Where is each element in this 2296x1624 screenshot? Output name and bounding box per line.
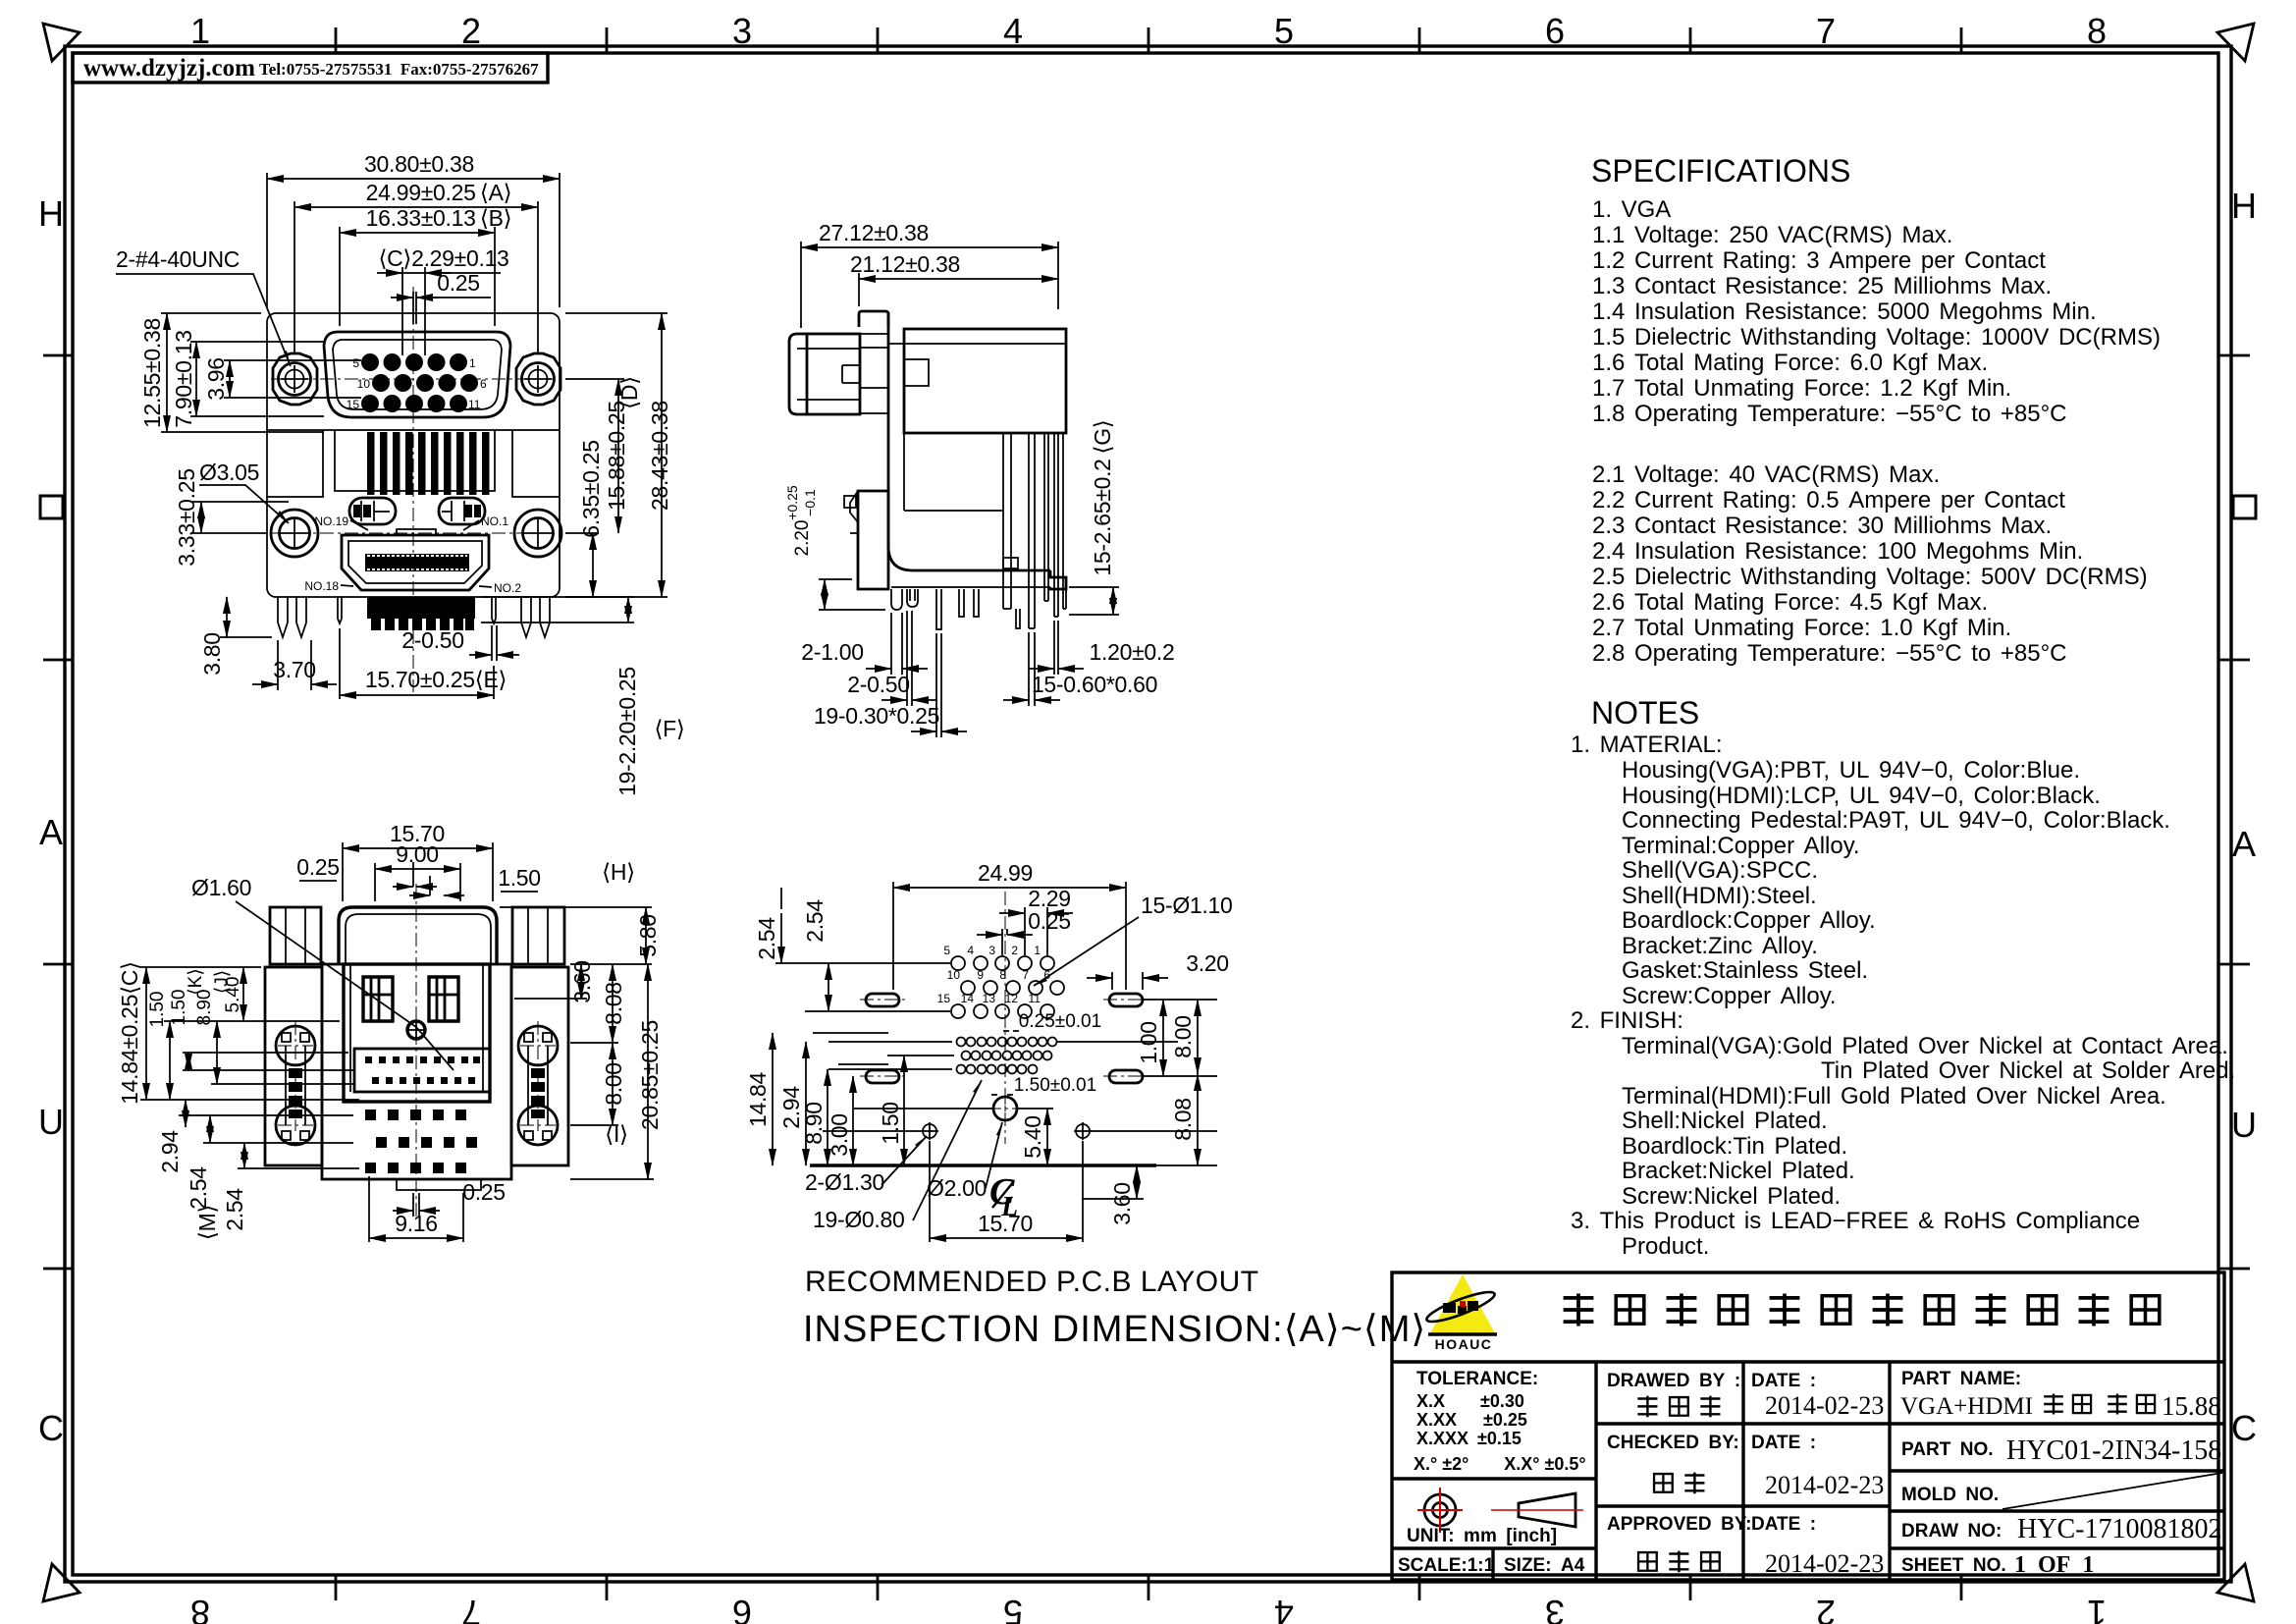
svg-text:8.08: 8.08 — [1170, 1098, 1196, 1141]
svg-text:2.4 Insulation Resistance:: 2.4 Insulation Resistance: 100 Megohms M… — [1592, 538, 2083, 565]
svg-text:⟨I⟩: ⟨I⟩ — [605, 1121, 627, 1147]
svg-text:2: 2 — [1011, 944, 1018, 957]
svg-text:C: C — [38, 1408, 64, 1448]
svg-text:12.55±0.38: 12.55±0.38 — [139, 318, 165, 428]
svg-text:16.33±0.13 ⟨B⟩: 16.33±0.13 ⟨B⟩ — [366, 205, 512, 231]
svg-text:1: 1 — [469, 356, 476, 370]
svg-text:Boardlock:Copper Alloy.: Boardlock:Copper Alloy. — [1622, 907, 1876, 934]
svg-text:DRAW NO:: DRAW NO: — [1901, 1521, 2002, 1542]
svg-text:15.70±0.25⟨E⟩: 15.70±0.25⟨E⟩ — [365, 667, 507, 692]
svg-text:APPROVED BY:: APPROVED BY: — [1607, 1514, 1751, 1535]
svg-text:2-#4-40UNC: 2-#4-40UNC — [116, 246, 240, 272]
svg-text:Terminal:Copper Alloy.: Terminal:Copper Alloy. — [1622, 833, 1860, 859]
svg-text:Product.: Product. — [1622, 1233, 1709, 1260]
svg-text:HYC01-2IN34-158: HYC01-2IN34-158 — [2006, 1435, 2221, 1466]
svg-text:5.80: 5.80 — [635, 914, 661, 957]
svg-text:19-2.20±0.25: 19-2.20±0.25 — [614, 667, 640, 796]
svg-text:X.° ±2° X.X° ±0.5°: X.° ±2° X.X° ±0.5° — [1414, 1454, 1586, 1474]
svg-text:⟨J⟩: ⟨J⟩ — [212, 970, 233, 994]
svg-text:A: A — [39, 812, 63, 852]
svg-text:3.80: 3.80 — [199, 632, 225, 676]
svg-text:2.1 Voltage: 40 VAC(RMS) M: 2.1 Voltage: 40 VAC(RMS) Max. — [1592, 461, 1940, 488]
svg-text:11: 11 — [1029, 992, 1041, 1005]
svg-text:Tel:0755-27575531 Fax:0755-275: Tel:0755-27575531 Fax:0755-27576267 — [259, 60, 539, 79]
svg-text:X.X ±0.30: X.X ±0.30 — [1416, 1391, 1524, 1411]
svg-text:PART NO.: PART NO. — [1901, 1439, 1994, 1460]
svg-text:⟨C⟩2.29±0.13: ⟨C⟩2.29±0.13 — [378, 245, 508, 271]
svg-text:RECOMMENDED P.C.B LAYOUT: RECOMMENDED P.C.B LAYOUT — [805, 1266, 1259, 1298]
svg-text:DATE :: DATE : — [1751, 1371, 1816, 1391]
svg-text:2-Ø1.30: 2-Ø1.30 — [805, 1169, 884, 1195]
svg-text:2.54: 2.54 — [802, 899, 828, 943]
svg-text:2.54: 2.54 — [186, 1166, 211, 1210]
svg-text:2014-02-23: 2014-02-23 — [1765, 1391, 1884, 1420]
svg-text:14: 14 — [961, 992, 975, 1005]
svg-text:15.88: 15.88 — [2162, 1391, 2221, 1421]
svg-text:8: 8 — [190, 1593, 210, 1624]
svg-text:13: 13 — [983, 992, 996, 1005]
svg-text:1.4 Insulation Resistance:: 1.4 Insulation Resistance: 5000 Megohms … — [1592, 298, 2097, 325]
svg-text:U: U — [2231, 1105, 2257, 1145]
svg-text:X.XX ±0.25: X.XX ±0.25 — [1416, 1410, 1527, 1430]
svg-text:Terminal(VGA):Gold Plated Ov: Terminal(VGA):Gold Plated Over Nickel at… — [1622, 1033, 2228, 1059]
svg-text:5: 5 — [943, 944, 950, 957]
svg-text:DATE :: DATE : — [1751, 1514, 1816, 1535]
svg-text:2.7 Total Unmating Force:: 2.7 Total Unmating Force: 1.0 Kgf Min. — [1592, 615, 2011, 641]
svg-text:DRAWED BY :: DRAWED BY : — [1607, 1371, 1740, 1391]
svg-text:Boardlock:Tin Plated.: Boardlock:Tin Plated. — [1622, 1133, 1847, 1160]
svg-text:H: H — [2231, 186, 2257, 226]
svg-text:9: 9 — [977, 968, 984, 982]
svg-text:15-0.60*0.60: 15-0.60*0.60 — [1032, 672, 1157, 697]
svg-text:2-0.50: 2-0.50 — [847, 672, 909, 697]
svg-text:NOTES: NOTES — [1591, 695, 1699, 731]
svg-text:3: 3 — [1545, 1593, 1565, 1624]
svg-text:HOAUC: HOAUC — [1435, 1336, 1493, 1352]
svg-text:SIZE: A4: SIZE: A4 — [1504, 1555, 1585, 1576]
svg-text:Gasket:Stainless Steel.: Gasket:Stainless Steel. — [1622, 957, 1868, 984]
svg-text:19-0.30*0.25: 19-0.30*0.25 — [814, 703, 939, 729]
svg-text:28.43±0.38: 28.43±0.38 — [647, 401, 672, 511]
svg-text:14.84±0.25⟨C⟩: 14.84±0.25⟨C⟩ — [117, 961, 142, 1105]
svg-text:⟨M⟩: ⟨M⟩ — [194, 1205, 220, 1240]
svg-text:27.12±0.38: 27.12±0.38 — [819, 220, 929, 245]
svg-text:8: 8 — [2087, 11, 2107, 51]
svg-text:+0.25: +0.25 — [784, 485, 800, 520]
svg-text:7: 7 — [461, 1593, 481, 1624]
svg-text:Ø3.05: Ø3.05 — [199, 460, 259, 485]
svg-text:2: 2 — [461, 11, 481, 51]
svg-text:⟨G⟩: ⟨G⟩ — [1090, 420, 1115, 455]
svg-text:NO.19: NO.19 — [314, 514, 348, 528]
svg-text:A: A — [2232, 824, 2256, 864]
svg-text:H: H — [38, 193, 64, 234]
svg-text:−0.1: −0.1 — [802, 489, 818, 516]
svg-text:Shell(VGA):SPCC.: Shell(VGA):SPCC. — [1622, 857, 1818, 884]
svg-text:3.70: 3.70 — [273, 657, 316, 682]
svg-text:Screw:Copper Alloy.: Screw:Copper Alloy. — [1622, 983, 1837, 1009]
svg-text:TOLERANCE:: TOLERANCE: — [1416, 1369, 1538, 1389]
svg-text:15.70: 15.70 — [978, 1211, 1033, 1236]
svg-text:1.8 Operating Temperature:: 1.8 Operating Temperature: −55°C to +85°… — [1592, 401, 2067, 427]
svg-text:3: 3 — [732, 11, 752, 51]
svg-text:Shell:Nickel Plated.: Shell:Nickel Plated. — [1622, 1108, 1828, 1134]
svg-text:6: 6 — [1545, 11, 1565, 51]
svg-text:2.2 Current Rating: 0.5 Am: 2.2 Current Rating: 0.5 Ampere per Conta… — [1592, 487, 2065, 514]
svg-text:1 OF 1: 1 OF 1 — [2014, 1552, 2094, 1578]
svg-text:0.25±0.01: 0.25±0.01 — [1019, 1011, 1101, 1032]
svg-text:7: 7 — [1022, 968, 1029, 982]
svg-text:NO.18: NO.18 — [304, 579, 339, 593]
svg-text:1.6 Total Mating Force: 6.: 1.6 Total Mating Force: 6.0 Kgf Max. — [1592, 350, 1988, 376]
svg-text:1.20±0.2: 1.20±0.2 — [1090, 639, 1175, 665]
svg-text:8.00: 8.00 — [601, 1062, 626, 1106]
svg-text:3.00: 3.00 — [827, 1113, 852, 1157]
svg-text:8.08: 8.08 — [601, 982, 626, 1025]
svg-text:6.35±0.25: 6.35±0.25 — [578, 440, 604, 537]
svg-text:15-2.65±0.2: 15-2.65±0.2 — [1090, 459, 1115, 575]
svg-text:Housing(VGA):PBT, UL 94V−0,: Housing(VGA):PBT, UL 94V−0, Color:Blue. — [1622, 757, 2080, 784]
svg-text:MOLD NO.: MOLD NO. — [1901, 1485, 1999, 1505]
svg-text:1: 1 — [1034, 944, 1041, 957]
svg-text:Tin Plated Over Nickel at: Tin Plated Over Nickel at Solder Ared. — [1821, 1057, 2235, 1084]
svg-text:5: 5 — [352, 356, 359, 370]
svg-text:11: 11 — [468, 398, 481, 411]
svg-text:NO.1: NO.1 — [481, 514, 508, 528]
svg-text:2: 2 — [1816, 1593, 1836, 1624]
svg-text:3: 3 — [988, 944, 995, 957]
svg-text:2.3 Contact Resistance: 30: 2.3 Contact Resistance: 30 Milliohms Max… — [1592, 513, 2052, 539]
svg-text:30.80±0.38: 30.80±0.38 — [364, 151, 474, 177]
svg-text:1.1 Voltage: 250 VAC(RMS): 1.1 Voltage: 250 VAC(RMS) Max. — [1592, 222, 1952, 248]
svg-text:0.25: 0.25 — [462, 1179, 506, 1205]
svg-text:Shell(HDMI):Steel.: Shell(HDMI):Steel. — [1622, 883, 1817, 909]
svg-text:2-0.50: 2-0.50 — [401, 627, 463, 653]
svg-text:2.8 Operating Temperature:: 2.8 Operating Temperature: −55°C to +85°… — [1592, 640, 2067, 667]
svg-text:1.7 Total Unmating Force:: 1.7 Total Unmating Force: 1.2 Kgf Min. — [1592, 375, 2011, 402]
svg-text:SHEET NO.: SHEET NO. — [1901, 1555, 2006, 1576]
svg-text:7: 7 — [1816, 11, 1836, 51]
svg-text:20.85±0.25: 20.85±0.25 — [637, 1020, 663, 1130]
svg-text:X.XXX ±0.15: X.XXX ±0.15 — [1416, 1429, 1522, 1448]
svg-text:15: 15 — [347, 398, 360, 411]
svg-text:Bracket:Nickel Plated.: Bracket:Nickel Plated. — [1622, 1158, 1855, 1184]
svg-text:2-1.00: 2-1.00 — [801, 639, 863, 665]
svg-text:15: 15 — [937, 992, 951, 1005]
svg-text:Housing(HDMI):LCP, UL 94V−0,: Housing(HDMI):LCP, UL 94V−0, Color:Black… — [1622, 783, 2101, 809]
svg-text:2.54: 2.54 — [222, 1188, 247, 1231]
svg-text:3.60: 3.60 — [1109, 1182, 1135, 1225]
svg-text:Screw:Nickel Plated.: Screw:Nickel Plated. — [1622, 1183, 1841, 1210]
svg-text:1.50: 1.50 — [147, 992, 168, 1028]
svg-text:VGA+HDMI: VGA+HDMI — [1900, 1393, 2033, 1420]
svg-text:5.40: 5.40 — [1020, 1115, 1045, 1159]
svg-text:1.5 Dielectric Withstanding: 1.5 Dielectric Withstanding Voltage: 100… — [1592, 324, 2161, 351]
svg-text:2. FINISH:: 2. FINISH: — [1571, 1007, 1683, 1034]
svg-text:0.25: 0.25 — [1028, 908, 1071, 934]
svg-text:19-Ø0.80: 19-Ø0.80 — [813, 1207, 905, 1232]
svg-text:3.96: 3.96 — [203, 357, 229, 401]
svg-text:3. This Product is LEAD−FR: 3. This Product is LEAD−FREE & RoHS Comp… — [1571, 1208, 2140, 1234]
svg-text:12: 12 — [1005, 992, 1019, 1005]
svg-text:Connecting Pedestal:PA9T, UL: Connecting Pedestal:PA9T, UL 94V−0, Colo… — [1622, 807, 2170, 834]
svg-text:2.20: 2.20 — [792, 520, 813, 557]
svg-text:U: U — [38, 1102, 64, 1142]
svg-text:2.94: 2.94 — [157, 1130, 183, 1173]
svg-text:1: 1 — [190, 11, 210, 51]
svg-text:⟨K⟩: ⟨K⟩ — [186, 968, 206, 996]
svg-text:1.3 Contact Resistance: 25: 1.3 Contact Resistance: 25 Milliohms Max… — [1592, 273, 2052, 299]
svg-text:NO.2: NO.2 — [494, 581, 521, 595]
svg-text:HYC-1710081802: HYC-1710081802 — [2017, 1514, 2221, 1544]
svg-text:2.5 Dielectric Withstanding: 2.5 Dielectric Withstanding Voltage: 500… — [1592, 564, 2148, 590]
svg-text:SCALE:1:1: SCALE:1:1 — [1398, 1555, 1495, 1576]
svg-text:SPECIFICATIONS: SPECIFICATIONS — [1591, 153, 1850, 189]
svg-text:6: 6 — [732, 1593, 752, 1624]
svg-text:15-Ø1.10: 15-Ø1.10 — [1141, 893, 1233, 918]
svg-text:1.50: 1.50 — [498, 865, 541, 891]
svg-text:1: 1 — [2087, 1593, 2107, 1624]
svg-text:15.88±0.25: 15.88±0.25 — [604, 401, 629, 511]
svg-text:21.12±0.38: 21.12±0.38 — [850, 251, 960, 277]
svg-text:10: 10 — [947, 968, 961, 982]
svg-text:4: 4 — [1003, 11, 1023, 51]
svg-text:1.50: 1.50 — [878, 1102, 903, 1145]
svg-text:5: 5 — [1003, 1593, 1023, 1624]
svg-text:Bracket:Zinc Alloy.: Bracket:Zinc Alloy. — [1622, 933, 1818, 959]
svg-text:1. VGA: 1. VGA — [1592, 196, 1671, 223]
svg-text:1.2 Current Rating: 3 Ampe: 1.2 Current Rating: 3 Ampere per Contact — [1592, 247, 2046, 274]
svg-text:⟨F⟩: ⟨F⟩ — [654, 716, 684, 741]
svg-text:24.99: 24.99 — [978, 860, 1033, 886]
svg-text:Terminal(HDMI):Full Gold Pla: Terminal(HDMI):Full Gold Plated Over Nic… — [1622, 1083, 2166, 1110]
svg-text:1.50±0.01: 1.50±0.01 — [1014, 1075, 1096, 1096]
svg-text:8.90: 8.90 — [801, 1102, 827, 1145]
svg-text:3.60: 3.60 — [569, 960, 595, 1003]
svg-text:9.00: 9.00 — [396, 841, 439, 867]
svg-text:3.20: 3.20 — [1186, 950, 1229, 976]
svg-text:2.6 Total Mating Force: 4.: 2.6 Total Mating Force: 4.5 Kgf Max. — [1592, 589, 1988, 616]
svg-text:1. MATERIAL:: 1. MATERIAL: — [1571, 731, 1723, 758]
svg-text:0.25: 0.25 — [296, 854, 340, 880]
svg-text:2.54: 2.54 — [754, 917, 779, 960]
svg-text:1.00: 1.00 — [1136, 1021, 1161, 1064]
svg-text:3.33±0.25: 3.33±0.25 — [174, 468, 199, 566]
svg-text:4: 4 — [1274, 1593, 1294, 1624]
svg-text:24.99±0.25 ⟨A⟩: 24.99±0.25 ⟨A⟩ — [366, 180, 512, 205]
svg-text:Ø1.60: Ø1.60 — [191, 875, 251, 900]
svg-text:2014-02-23: 2014-02-23 — [1765, 1471, 1884, 1499]
svg-text:2014-02-23: 2014-02-23 — [1765, 1549, 1884, 1578]
svg-text:8.00: 8.00 — [1170, 1015, 1196, 1058]
svg-text:PART NAME:: PART NAME: — [1901, 1369, 2021, 1389]
svg-text:⟨D⟩: ⟨D⟩ — [616, 376, 642, 409]
svg-text:14.84: 14.84 — [745, 1071, 771, 1127]
svg-text:INSPECTION DIMENSION:⟨A⟩~⟨M⟩: INSPECTION DIMENSION:⟨A⟩~⟨M⟩ — [803, 1309, 1426, 1350]
svg-text:C: C — [2231, 1408, 2257, 1448]
svg-text:www.dzyjzj.com: www.dzyjzj.com — [83, 55, 255, 81]
svg-text:CHECKED BY:: CHECKED BY: — [1607, 1433, 1739, 1453]
svg-text:UNIT: mm [inch]: UNIT: mm [inch] — [1407, 1526, 1557, 1546]
svg-text:7.90±0.13: 7.90±0.13 — [171, 330, 196, 427]
svg-text:DATE :: DATE : — [1751, 1433, 1816, 1453]
svg-text:9.16: 9.16 — [395, 1211, 438, 1236]
svg-text:5: 5 — [1274, 11, 1294, 51]
svg-text:4: 4 — [967, 944, 974, 957]
svg-text:⟨H⟩: ⟨H⟩ — [602, 859, 635, 885]
svg-text:Ø2.00: Ø2.00 — [927, 1175, 987, 1201]
svg-text:0.25: 0.25 — [437, 270, 480, 296]
